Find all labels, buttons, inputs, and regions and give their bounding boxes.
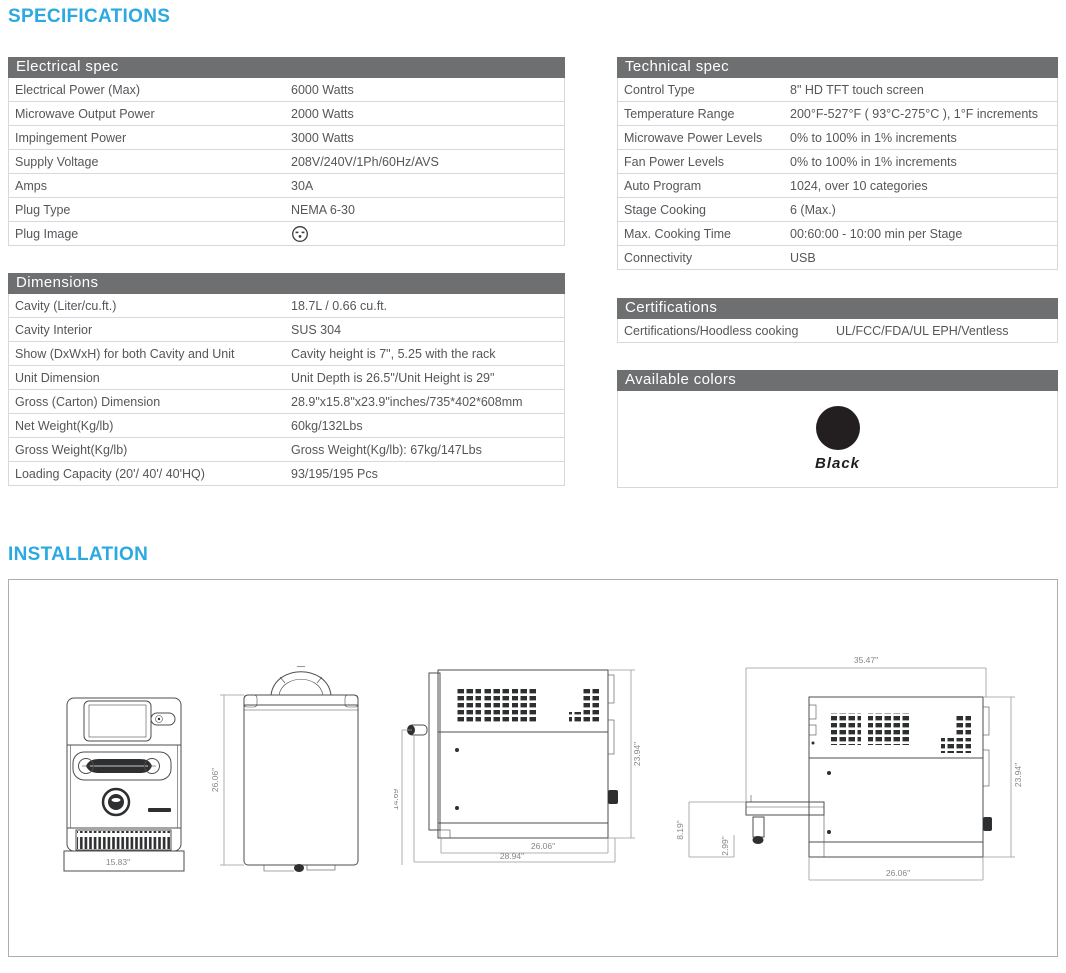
spec-row-label: Temperature Range [618,107,790,121]
installation-drawings-panel: 15.83" 26.06" [8,579,1058,957]
spec-row-label: Supply Voltage [9,155,291,169]
spec-row-value: 00:60:00 - 10:00 min per Stage [790,227,1057,241]
dimension-label: 15.83" [106,857,130,867]
left-column: Electrical spec Electrical Power (Max)60… [8,57,565,488]
dimension-label: 26.06" [210,768,220,792]
spec-row: Plug TypeNEMA 6-30 [9,198,564,222]
spec-row-label: Plug Type [9,203,291,217]
touch-screen [84,701,151,741]
right-column: Technical spec Control Type8" HD TFT tou… [617,57,1058,488]
vent-block [456,687,481,723]
spec-row-icon-value [291,225,564,243]
certifications-rows: Certifications/Hoodless cookingUL/FCC/FD… [617,319,1058,343]
spec-row-label: Show (DxWxH) for both Cavity and Unit [9,347,291,361]
dimension-label: 28.94" [500,851,524,861]
spec-row-label: Microwave Output Power [9,107,291,121]
brand-wordmark [148,808,171,812]
certifications-table: Certifications Certifications/Hoodless c… [617,298,1058,343]
dimension-label: 8.19" [675,820,685,840]
spec-row-label: Gross Weight(Kg/lb) [9,443,291,457]
spec-row-value: 208V/240V/1Ph/60Hz/AVS [291,155,564,169]
spec-row-value: UL/FCC/FDA/UL EPH/Ventless [836,324,1057,338]
dimension-label: 14.69" [394,786,400,810]
spec-row-label: Gross (Carton) Dimension [9,395,291,409]
oven-top-view-drawing: 26.06" [209,660,374,875]
spec-row: Plug Image [9,222,564,246]
available-colors-title: Available colors [617,370,1058,391]
vent-block [512,687,537,723]
latch [151,713,175,725]
spec-row-label: Control Type [618,83,790,97]
spec-columns: Electrical spec Electrical Power (Max)60… [8,57,1058,488]
dimension-label: 23.94" [1013,763,1023,787]
spec-row: Loading Capacity (20'/ 40'/ 40'HQ)93/195… [9,462,564,486]
spec-row-label: Auto Program [618,179,790,193]
spec-row: Amps30A [9,174,564,198]
spec-row: Cavity InteriorSUS 304 [9,318,564,342]
spec-row-label: Certifications/Hoodless cooking [618,324,836,338]
swatch-label: Black [815,455,860,472]
spec-row-value: 0% to 100% in 1% increments [790,131,1057,145]
spec-row-value: 3000 Watts [291,131,564,145]
spec-row-value: 6000 Watts [291,83,564,97]
dimensions-table: Dimensions Cavity (Liter/cu.ft.)18.7L / … [8,273,565,486]
spec-row: Net Weight(Kg/lb)60kg/132Lbs [9,414,564,438]
spec-row: Supply Voltage208V/240V/1Ph/60Hz/AVS [9,150,564,174]
spec-row-value: USB [790,251,1057,265]
spec-row-value: 6 (Max.) [790,203,1057,217]
spec-row: Microwave Output Power2000 Watts [9,102,564,126]
spec-row: Gross (Carton) Dimension28.9"x15.8"x23.9… [9,390,564,414]
dimension-label: 26.06" [531,841,555,851]
spec-row-value: 28.9"x15.8"x23.9"inches/735*402*608mm [291,395,564,409]
spec-row-value: 60kg/132Lbs [291,419,564,433]
spec-row-value: Gross Weight(Kg/lb): 67kg/147Lbs [291,443,564,457]
spec-row: Auto Program1024, over 10 categories [618,174,1057,198]
oven-side-view-door-open-drawing: 35.47" 23.94" [659,645,1044,903]
vent-block [831,713,861,745]
spec-row-label: Net Weight(Kg/lb) [9,419,291,433]
spec-row: Control Type8" HD TFT touch screen [618,78,1057,102]
certifications-title: Certifications [617,298,1058,319]
spec-row-label: Max. Cooking Time [618,227,790,241]
spec-row-label: Fan Power Levels [618,155,790,169]
spec-row-value: 18.7L / 0.66 cu.ft. [291,299,564,313]
spec-row-label: Cavity (Liter/cu.ft.) [9,299,291,313]
technical-spec-rows: Control Type8" HD TFT touch screenTemper… [617,78,1058,270]
oven-front-view-drawing: 15.83" [56,695,191,875]
available-colors-section: Available colors Black [617,370,1058,488]
spec-row: Show (DxWxH) for both Cavity and UnitCav… [9,342,564,366]
spec-row-value: 93/195/195 Pcs [291,467,564,481]
vent-block [569,712,601,722]
dimensions-title: Dimensions [8,273,565,294]
spec-row-value: 0% to 100% in 1% increments [790,155,1057,169]
spec-row-value: 200°F-527°F ( 93°C-275°C ), 1°F incremen… [790,107,1057,121]
spec-row-value: SUS 304 [291,323,564,337]
spec-row: Microwave Power Levels0% to 100% in 1% i… [618,126,1057,150]
spec-row-value: NEMA 6-30 [291,203,564,217]
vent-block [868,713,910,745]
spec-sheet-page: SPECIFICATIONS Electrical spec Electrica… [0,0,1066,973]
dimension-label: 35.47" [854,655,878,665]
spec-row-label: Impingement Power [9,131,291,145]
spec-row: Gross Weight(Kg/lb)Gross Weight(Kg/lb): … [9,438,564,462]
spec-row: Max. Cooking Time00:60:00 - 10:00 min pe… [618,222,1057,246]
vent-block [484,687,509,723]
spec-row-value: Cavity height is 7", 5.25 with the rack [291,347,564,361]
spec-row-label: Microwave Power Levels [618,131,790,145]
electrical-spec-table: Electrical spec Electrical Power (Max)60… [8,57,565,246]
spec-row-value: 2000 Watts [291,107,564,121]
spec-row: Stage Cooking6 (Max.) [618,198,1057,222]
vent-block [954,715,971,735]
spec-row-label: Cavity Interior [9,323,291,337]
spec-row-label: Unit Dimension [9,371,291,385]
black-color-swatch [816,406,860,450]
electrical-spec-title: Electrical spec [8,57,565,78]
open-door-tray [746,802,824,815]
nema-6-30-plug-icon [291,225,309,243]
spec-row: Unit DimensionUnit Depth is 26.5"/Unit H… [9,366,564,390]
spec-row: Certifications/Hoodless cookingUL/FCC/FD… [618,319,1057,343]
spec-row-label: Connectivity [618,251,790,265]
door-leg [753,817,764,837]
spec-row-label: Amps [9,179,291,193]
spec-row-label: Electrical Power (Max) [9,83,291,97]
vent-block [583,688,601,712]
dimension-label: 26.06" [886,868,910,878]
dimension-label: 23.94" [632,742,642,766]
spec-row: Cavity (Liter/cu.ft.)18.7L / 0.66 cu.ft. [9,294,564,318]
color-swatch-area: Black [617,391,1058,488]
electrical-spec-rows: Electrical Power (Max)6000 WattsMicrowav… [8,78,565,246]
oven-side-view-drawing: 14.69" 23.94" 26.06" 28.94" [394,660,649,875]
installation-heading: INSTALLATION [8,544,1058,566]
spec-row-value: 8" HD TFT touch screen [790,83,1057,97]
dimensions-rows: Cavity (Liter/cu.ft.)18.7L / 0.66 cu.ft.… [8,294,565,486]
technical-spec-table: Technical spec Control Type8" HD TFT tou… [617,57,1058,270]
technical-spec-title: Technical spec [617,57,1058,78]
spec-row-value: 30A [291,179,564,193]
vent-block [941,738,971,753]
spec-row-label: Plug Image [9,227,291,241]
spec-row-value: 1024, over 10 categories [790,179,1057,193]
spec-row: Impingement Power3000 Watts [9,126,564,150]
spec-row: Temperature Range200°F-527°F ( 93°C-275°… [618,102,1057,126]
spec-row-label: Loading Capacity (20'/ 40'/ 40'HQ) [9,467,291,481]
specifications-heading: SPECIFICATIONS [8,6,1058,28]
spec-row: Electrical Power (Max)6000 Watts [9,78,564,102]
spec-row: ConnectivityUSB [618,246,1057,270]
spec-row-value: Unit Depth is 26.5"/Unit Height is 29" [291,371,564,385]
spec-row-label: Stage Cooking [618,203,790,217]
spec-row: Fan Power Levels0% to 100% in 1% increme… [618,150,1057,174]
dimension-label: 2.99" [720,836,730,856]
